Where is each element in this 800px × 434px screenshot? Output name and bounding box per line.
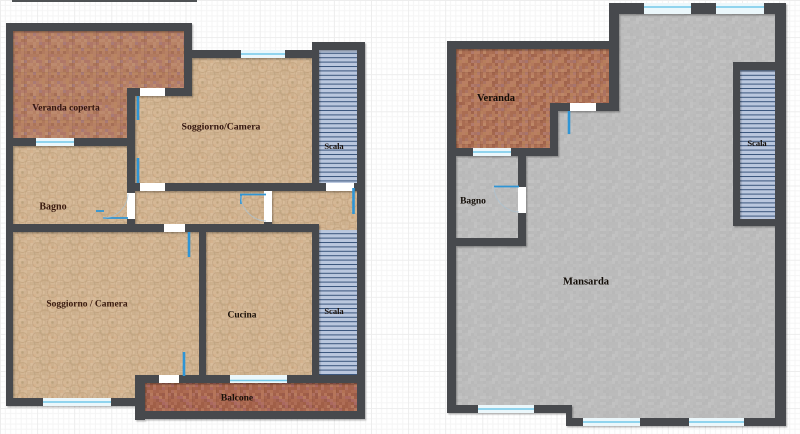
svg-text:Bagno: Bagno — [39, 202, 66, 213]
svg-text:Cucina: Cucina — [227, 311, 256, 321]
svg-text:Bagno: Bagno — [460, 197, 486, 207]
svg-text:Soggiorno / Camera: Soggiorno / Camera — [46, 300, 128, 310]
svg-text:Scala: Scala — [324, 141, 344, 151]
svg-text:Soggiorno/Camera: Soggiorno/Camera — [182, 122, 261, 133]
svg-text:Veranda: Veranda — [477, 93, 516, 104]
svg-text:Scala: Scala — [747, 138, 767, 148]
svg-text:Scala: Scala — [324, 306, 344, 316]
svg-text:Balcone: Balcone — [221, 394, 253, 404]
svg-text:Mansarda: Mansarda — [563, 277, 610, 288]
svg-text:Veranda coperta: Veranda coperta — [32, 104, 100, 114]
